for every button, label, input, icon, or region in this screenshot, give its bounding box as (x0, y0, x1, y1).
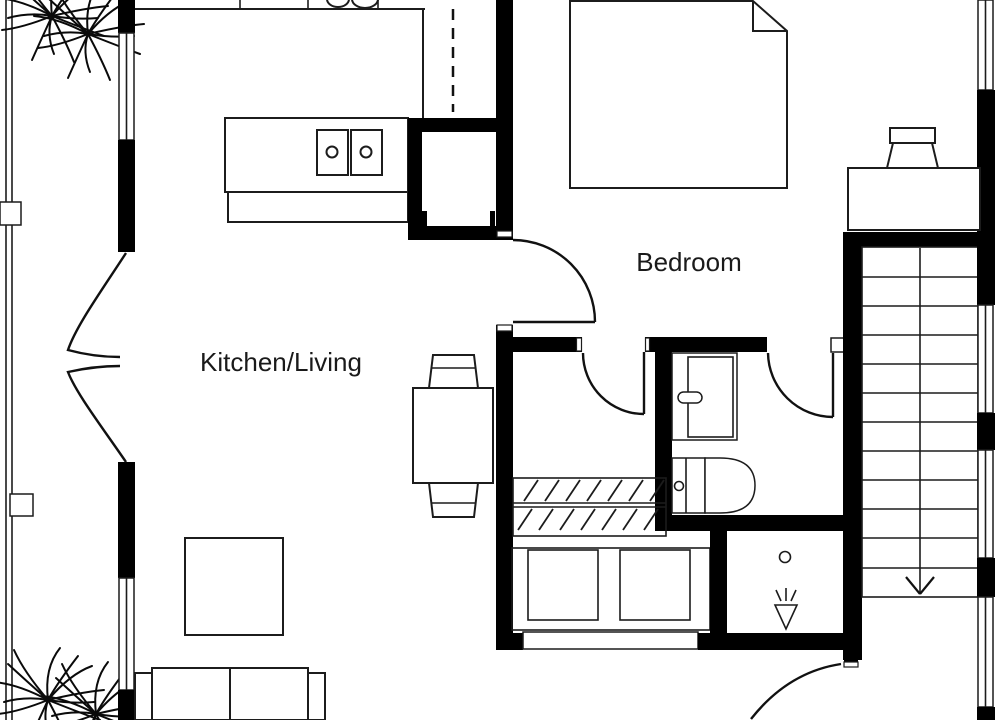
toilet-bowl (705, 458, 755, 513)
wall-segment (408, 118, 422, 240)
wall-segment (408, 118, 497, 132)
wall-segment (655, 515, 858, 531)
balcony-post (0, 202, 21, 225)
right-exterior-wall (977, 0, 995, 720)
door-jamb (490, 211, 495, 226)
sofa-armrest (135, 673, 152, 720)
sink-bowl (327, 0, 349, 7)
wall-segment (645, 337, 767, 352)
door-jamb (422, 211, 427, 226)
appliance-platform (512, 548, 710, 630)
door-sill (646, 338, 650, 351)
bedroom-label: Bedroom (636, 247, 742, 277)
wall-segment (118, 462, 135, 578)
wall-segment (698, 633, 844, 650)
cooktop-burner (351, 130, 382, 175)
wall-segment (710, 531, 727, 650)
bedroom-door-swing (513, 240, 595, 322)
wall-segment (496, 325, 513, 650)
faucet (678, 392, 702, 403)
door-sill (577, 338, 582, 351)
bed (570, 1, 787, 188)
door-sill (497, 325, 512, 331)
bedroom-furniture (570, 1, 980, 230)
wall-pier (831, 338, 845, 352)
french-door-leaf (68, 366, 126, 462)
floor-plan: Kitchen/Living Bedroom (0, 0, 1000, 720)
sofa-armrest (308, 673, 325, 720)
storage-niche (408, 118, 497, 240)
dining-chair (429, 355, 478, 388)
wall-segment (843, 232, 980, 247)
window (523, 632, 698, 649)
sink-bowl (352, 0, 378, 8)
bathroom-door-swing (768, 353, 833, 417)
dryer (620, 550, 690, 620)
wall-segment (408, 226, 497, 240)
living-furniture (135, 538, 325, 720)
wall-segment (118, 140, 135, 252)
stairwell (843, 232, 980, 660)
wall-segment (496, 0, 513, 240)
closet-door-swing (583, 353, 644, 414)
wall-segment (118, 690, 135, 720)
bottom-wall (496, 632, 858, 719)
wall-segment (977, 413, 995, 450)
dining-set (413, 355, 493, 517)
bathroom (655, 352, 858, 531)
balcony-post (10, 494, 33, 516)
kitchen-living-label: Kitchen/Living (200, 347, 362, 377)
wardrobe-hangers (518, 480, 664, 530)
dining-chair (429, 483, 478, 517)
left-exterior-wall (68, 0, 135, 720)
toilet-tank (672, 458, 705, 513)
drain (780, 552, 791, 563)
door-sill (844, 662, 858, 667)
wall-segment (977, 707, 995, 720)
door-sill (497, 231, 512, 237)
desk-chair-seat (887, 143, 938, 168)
washing-machine (528, 550, 598, 620)
wall-segment (118, 0, 135, 33)
wall-segment (496, 633, 523, 650)
wall-segment (843, 232, 862, 660)
french-door-leaf (68, 253, 126, 357)
dining-table (413, 388, 493, 483)
desk-chair-backrest (890, 128, 935, 143)
wall-segment (513, 337, 582, 352)
shower-room (775, 552, 797, 630)
cooktop-burner (317, 130, 348, 175)
kitchen (135, 0, 453, 222)
desk (848, 168, 980, 230)
shower-icon (775, 588, 797, 629)
entry-door-swing (751, 664, 841, 719)
wall-segment (977, 558, 995, 597)
wall-segment (655, 352, 672, 517)
coffee-table (185, 538, 283, 635)
kitchen-island-lower (228, 192, 408, 222)
